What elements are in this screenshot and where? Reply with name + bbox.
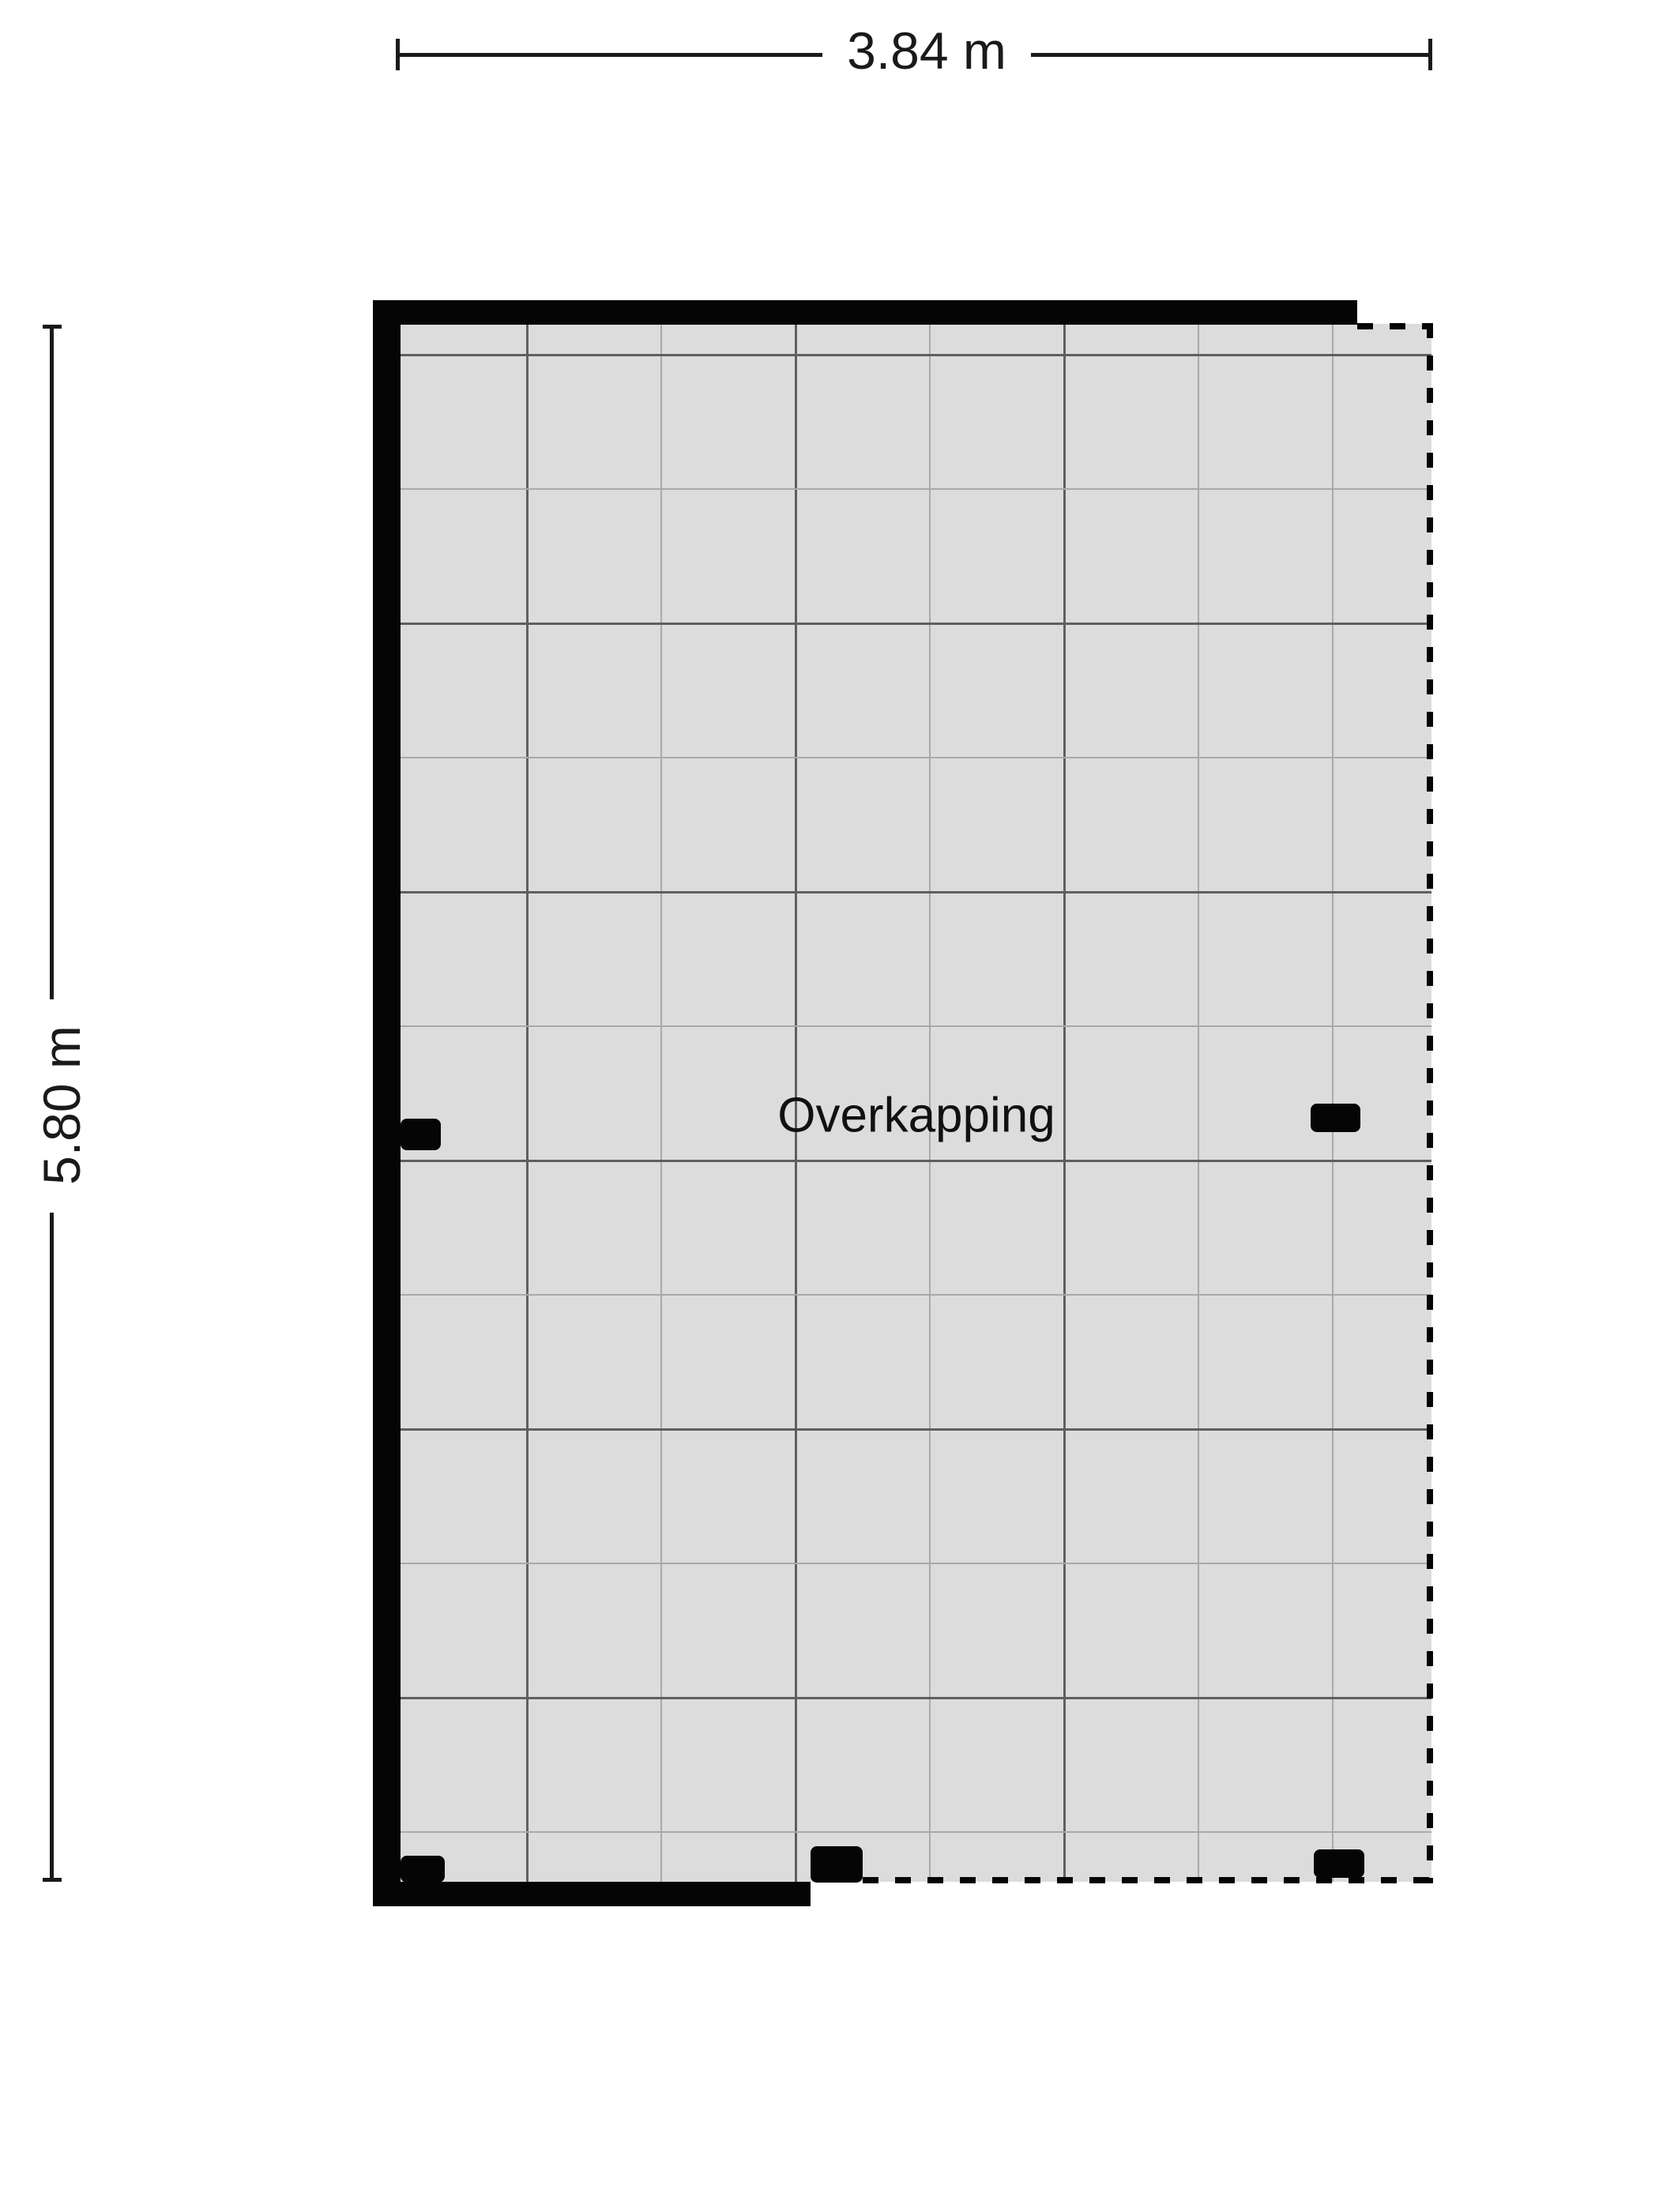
dimension-tick [1428,39,1432,70]
room-label: Overkapping [777,1088,1055,1144]
grid-line-h [399,1831,1431,1833]
grid-line-v [1063,324,1066,1882]
grid-line-h [399,1160,1431,1162]
grid-line-h [399,1697,1431,1699]
grid-line-h [399,488,1431,490]
dashed-edge-top-right [1357,323,1431,329]
width-dimension-label: 3.84 m [847,21,1006,81]
post-bottom-left [401,1856,445,1883]
dimension-tick [43,325,62,329]
grid-line-h [399,757,1431,758]
grid-line-h [399,1025,1431,1027]
grid-line-v [526,324,529,1882]
grid-line-h [399,354,1431,356]
grid-line-v [660,324,662,1882]
wall-left [373,300,401,1906]
post-bottom-middle [811,1846,863,1883]
grid-line-h [399,1294,1431,1296]
dimension-tick [43,1878,62,1882]
width-dimension-line [1031,53,1431,57]
wall-bottom [373,1882,811,1906]
height-dimension-label: 5.80 m [32,1025,92,1185]
post-right-middle [1311,1104,1360,1132]
grid-line-h [399,1563,1431,1564]
dashed-edge-right [1427,323,1433,1883]
grid-line-h [399,891,1431,893]
post-left-middle [401,1119,441,1150]
grid-line-h [399,623,1431,625]
grid-line-v [1332,324,1334,1882]
wall-top [373,300,1357,325]
dimension-tick [396,39,400,70]
dashed-edge-bottom [863,1877,1431,1883]
height-dimension-line [50,1213,54,1881]
height-dimension-line [50,326,54,999]
width-dimension-line [397,53,822,57]
grid-line-v [1198,324,1199,1882]
floorplan-canvas: 3.84 m 5.80 m Overkapping [0,0,1659,2212]
grid-line-h [399,1428,1431,1431]
post-bottom-right [1314,1849,1364,1878]
